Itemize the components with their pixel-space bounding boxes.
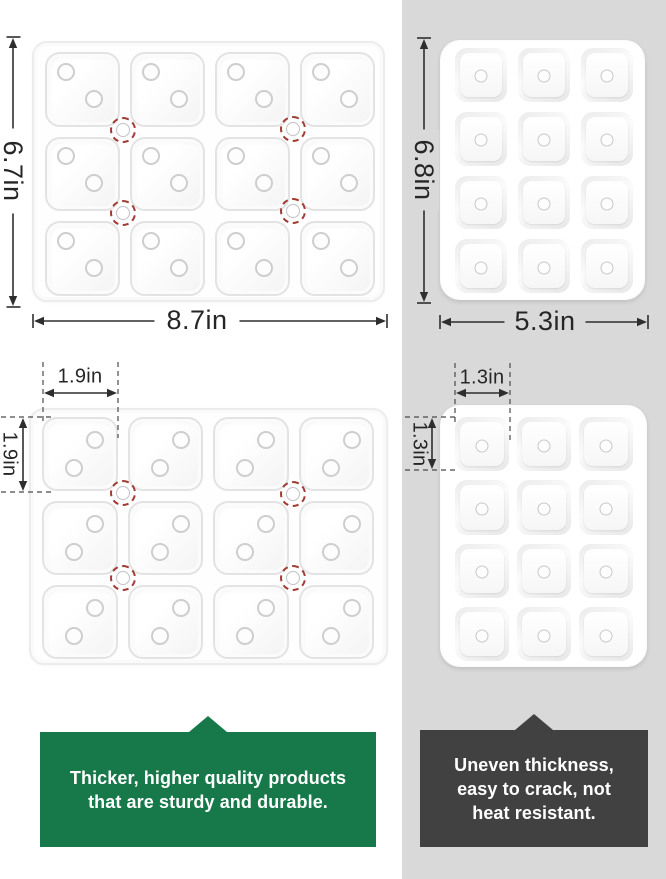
bad-cell-height-dimension-label: 1.3in — [409, 422, 430, 467]
vent-hole-icon — [538, 503, 551, 516]
vent-hole-icon — [257, 431, 275, 449]
vent-hole-icon — [322, 627, 340, 645]
tray-compartment — [455, 544, 509, 598]
vent-hole-icon — [340, 90, 358, 108]
vent-hole-icon — [538, 197, 551, 210]
tray-compartment — [45, 221, 120, 296]
highlight-ring-icon — [280, 198, 306, 224]
vent-hole-icon — [538, 439, 551, 452]
callout-line: that are sturdy and durable. — [88, 790, 328, 814]
tray-compartment — [45, 52, 120, 127]
vent-hole-icon — [57, 63, 75, 81]
tray-compartment — [130, 221, 205, 296]
vent-hole-icon — [227, 63, 245, 81]
callout-line: Thicker, higher quality products — [70, 766, 346, 790]
vent-hole-icon — [343, 431, 361, 449]
tray-compartment — [128, 585, 204, 659]
good-cell-height-dimension-label: 1.9in — [0, 432, 20, 477]
vent-hole-icon — [172, 515, 190, 533]
tray-compartment — [215, 52, 290, 127]
tray-compartment — [518, 176, 570, 230]
vent-hole-icon — [322, 543, 340, 561]
highlight-ring-icon — [280, 565, 306, 591]
tray-compartment — [42, 501, 118, 575]
tray-compartment — [455, 239, 507, 293]
tray-compartment — [130, 137, 205, 212]
vent-hole-icon — [151, 627, 169, 645]
vent-hole-icon — [57, 232, 75, 250]
tray-compartment — [215, 221, 290, 296]
vent-hole-icon — [57, 147, 75, 165]
vent-hole-icon — [340, 174, 358, 192]
tray-compartment — [215, 137, 290, 212]
vent-hole-icon — [172, 431, 190, 449]
vent-hole-icon — [538, 566, 551, 579]
tray-compartment — [128, 501, 204, 575]
vent-hole-icon — [476, 566, 489, 579]
vent-hole-icon — [255, 90, 273, 108]
vent-hole-icon — [257, 515, 275, 533]
tray-compartment — [455, 112, 507, 166]
competitor-tray-detail-view — [440, 405, 647, 667]
vent-hole-icon — [255, 259, 273, 277]
vent-hole-icon — [600, 439, 613, 452]
tray-compartment — [579, 607, 633, 661]
vent-hole-icon — [170, 259, 188, 277]
vent-hole-icon — [601, 261, 614, 274]
vent-hole-icon — [600, 629, 613, 642]
tray-compartment — [42, 417, 118, 491]
tray-compartment — [45, 137, 120, 212]
callout-line: easy to crack, not — [457, 777, 611, 801]
tray-compartment — [579, 544, 633, 598]
vent-hole-icon — [475, 197, 488, 210]
bad-width-dimension-label: 5.3in — [504, 306, 585, 336]
good-tray-detail-view — [29, 408, 388, 665]
vent-hole-icon — [312, 63, 330, 81]
tray-compartment — [581, 112, 633, 166]
vent-hole-icon — [475, 134, 488, 147]
highlight-ring-icon — [110, 200, 136, 226]
vent-hole-icon — [538, 134, 551, 147]
good-height-dimension-label: 6.7in — [0, 128, 28, 213]
vent-hole-icon — [142, 232, 160, 250]
tray-compartment — [455, 607, 509, 661]
highlight-ring-icon — [110, 117, 136, 143]
vent-hole-icon — [476, 503, 489, 516]
vent-hole-icon — [227, 232, 245, 250]
tray-compartment — [300, 52, 375, 127]
tray-compartment — [517, 544, 571, 598]
vent-hole-icon — [65, 459, 83, 477]
callout-line: heat resistant. — [472, 801, 596, 825]
vent-hole-icon — [65, 627, 83, 645]
tray-compartment — [518, 48, 570, 102]
competitor-product-callout: Uneven thickness, easy to crack, not hea… — [420, 730, 648, 847]
vent-hole-icon — [312, 147, 330, 165]
vent-hole-icon — [475, 70, 488, 83]
tray-compartment — [518, 239, 570, 293]
vent-hole-icon — [475, 261, 488, 274]
vent-hole-icon — [601, 70, 614, 83]
vent-hole-icon — [600, 566, 613, 579]
good-product-callout: Thicker, higher quality products that ar… — [40, 732, 376, 847]
tray-compartment — [300, 221, 375, 296]
competitor-tray-top-view — [440, 40, 645, 300]
vent-hole-icon — [86, 599, 104, 617]
vent-hole-icon — [151, 459, 169, 477]
vent-hole-icon — [601, 134, 614, 147]
tray-compartment — [517, 417, 571, 471]
vent-hole-icon — [538, 629, 551, 642]
tray-compartment — [581, 176, 633, 230]
tray-compartment — [455, 417, 509, 471]
vent-hole-icon — [65, 543, 83, 561]
vent-hole-icon — [236, 459, 254, 477]
vent-hole-icon — [476, 629, 489, 642]
highlight-ring-icon — [110, 565, 136, 591]
good-tray-top-view — [32, 41, 385, 302]
tray-compartment — [581, 239, 633, 293]
tray-compartment — [300, 137, 375, 212]
tray-compartment — [455, 480, 509, 534]
highlight-ring-icon — [110, 480, 136, 506]
tray-compartment — [517, 480, 571, 534]
vent-hole-icon — [312, 232, 330, 250]
highlight-ring-icon — [280, 481, 306, 507]
vent-hole-icon — [236, 627, 254, 645]
vent-hole-icon — [172, 599, 190, 617]
vent-hole-icon — [600, 503, 613, 516]
tray-compartment — [213, 585, 289, 659]
vent-hole-icon — [227, 147, 245, 165]
bad-height-dimension-label: 6.8in — [409, 129, 439, 210]
vent-hole-icon — [476, 439, 489, 452]
vent-hole-icon — [151, 543, 169, 561]
vent-hole-icon — [170, 90, 188, 108]
tray-compartment — [518, 112, 570, 166]
vent-hole-icon — [601, 197, 614, 210]
tray-compartment — [213, 501, 289, 575]
tray-compartment — [42, 585, 118, 659]
tray-compartment — [579, 417, 633, 471]
tray-compartment — [299, 417, 375, 491]
tray-compartment — [517, 607, 571, 661]
callout-line: Uneven thickness, — [454, 753, 614, 777]
vent-hole-icon — [86, 515, 104, 533]
vent-hole-icon — [142, 147, 160, 165]
vent-hole-icon — [255, 174, 273, 192]
vent-hole-icon — [85, 90, 103, 108]
vent-hole-icon — [538, 70, 551, 83]
tray-compartment — [299, 501, 375, 575]
vent-hole-icon — [236, 543, 254, 561]
tray-compartment — [455, 176, 507, 230]
tray-compartment — [581, 48, 633, 102]
vent-hole-icon — [85, 174, 103, 192]
vent-hole-icon — [142, 63, 160, 81]
vent-hole-icon — [538, 261, 551, 274]
vent-hole-icon — [170, 174, 188, 192]
comparison-infographic: 6.7in 8.7in 6.8in 5.3in 1.9in 1.9in 1.3i… — [0, 0, 666, 879]
bad-cell-width-dimension-label: 1.3in — [460, 368, 505, 389]
tray-compartment — [213, 417, 289, 491]
tray-compartment — [455, 48, 507, 102]
vent-hole-icon — [343, 599, 361, 617]
tray-compartment — [299, 585, 375, 659]
tray-compartment — [130, 52, 205, 127]
good-width-dimension-label: 8.7in — [154, 305, 239, 335]
tray-compartment — [128, 417, 204, 491]
highlight-ring-icon — [280, 116, 306, 142]
vent-hole-icon — [340, 259, 358, 277]
vent-hole-icon — [85, 259, 103, 277]
vent-hole-icon — [322, 459, 340, 477]
vent-hole-icon — [86, 431, 104, 449]
vent-hole-icon — [343, 515, 361, 533]
vent-hole-icon — [257, 599, 275, 617]
tray-compartment — [579, 480, 633, 534]
good-cell-width-dimension-label: 1.9in — [58, 367, 103, 388]
